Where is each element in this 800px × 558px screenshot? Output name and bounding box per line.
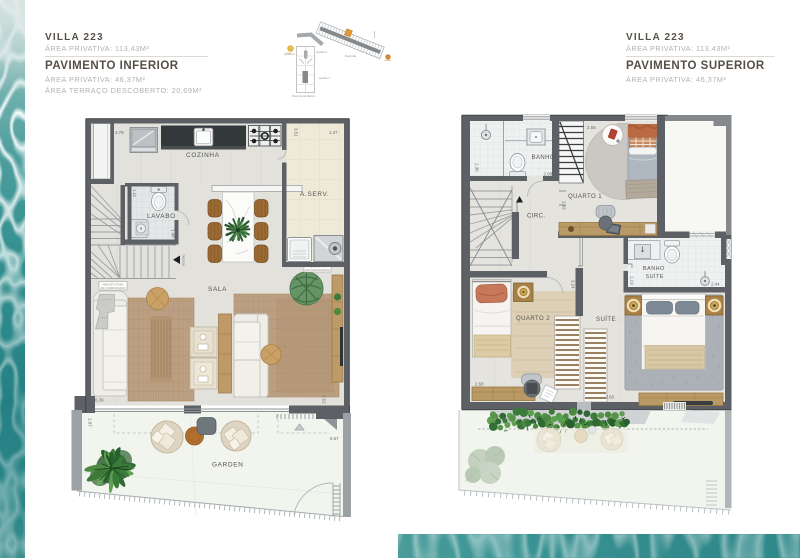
svg-text:2.44: 2.44 — [711, 282, 720, 287]
svg-text:DESCE: DESCE — [515, 202, 519, 212]
svg-text:2.68: 2.68 — [475, 382, 484, 387]
svg-text:1.30: 1.30 — [475, 163, 480, 172]
svg-text:SUÍTE: SUÍTE — [646, 273, 664, 280]
svg-text:BANHO: BANHO — [643, 266, 665, 272]
svg-text:1.19: 1.19 — [630, 276, 635, 285]
svg-text:QUARTO 1: QUARTO 1 — [568, 194, 602, 200]
svg-text:2.83: 2.83 — [562, 201, 567, 210]
svg-text:2.58: 2.58 — [587, 125, 596, 130]
svg-text:3.24: 3.24 — [571, 280, 576, 289]
svg-text:SUÍTE: SUÍTE — [596, 316, 616, 323]
svg-text:CIRC.: CIRC. — [527, 214, 546, 220]
svg-text:2.08: 2.08 — [544, 172, 553, 177]
svg-text:BANHO: BANHO — [532, 155, 556, 161]
svg-text:3.60: 3.60 — [606, 395, 615, 400]
svg-text:QUARTO 2: QUARTO 2 — [516, 316, 550, 322]
